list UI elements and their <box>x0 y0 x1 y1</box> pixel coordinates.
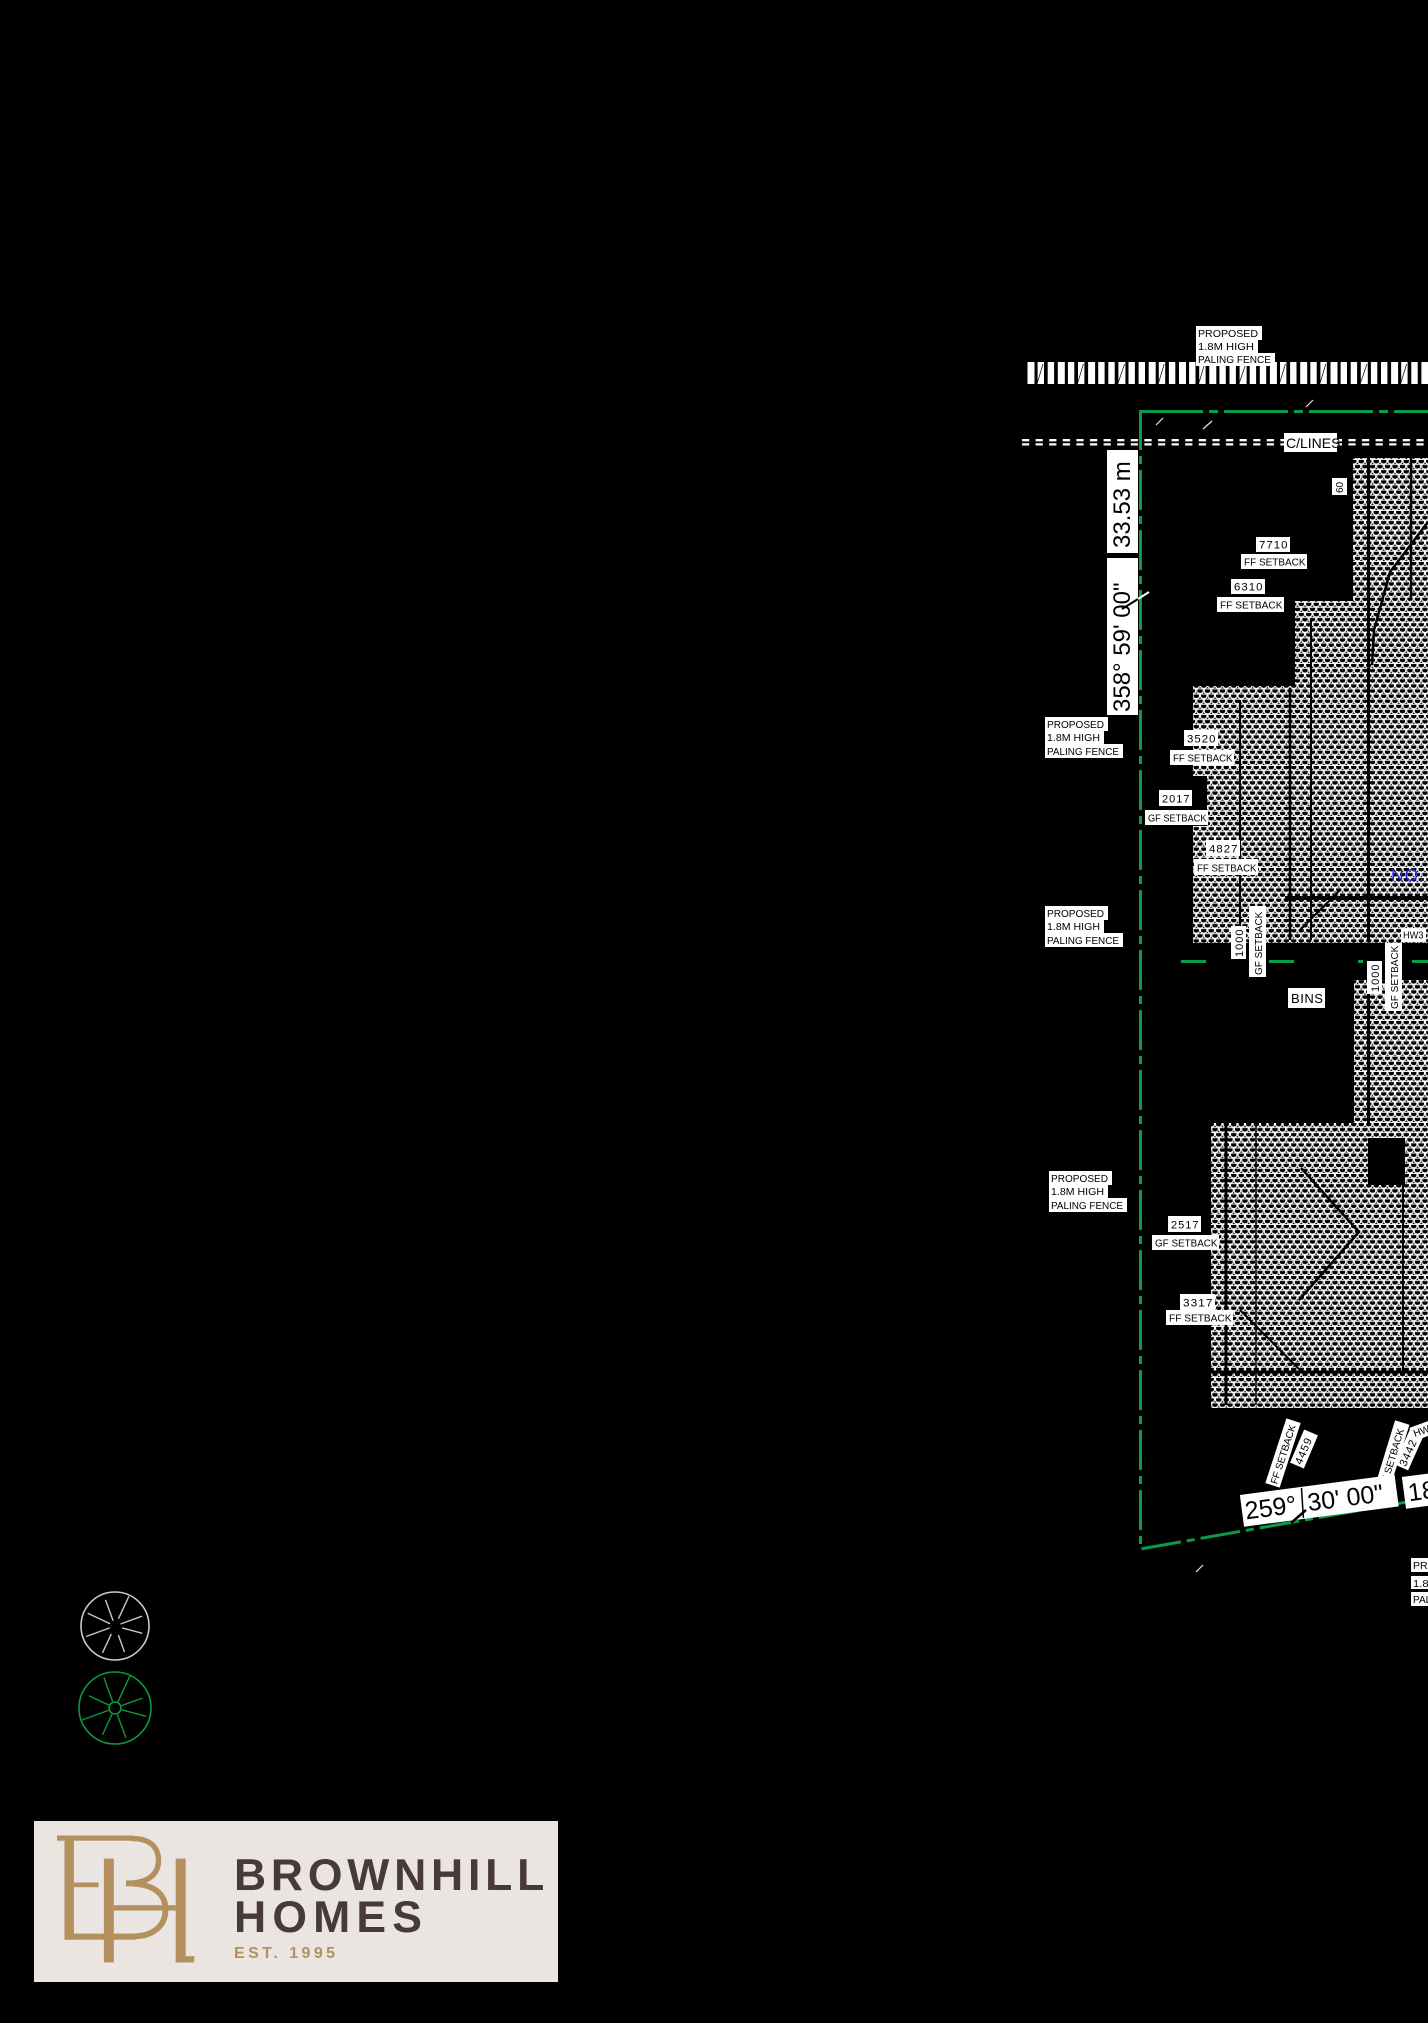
svg-text:PALING FENCE: PALING FENCE <box>1047 935 1119 947</box>
svg-text:HOMES: HOMES <box>234 1893 428 1942</box>
svg-text:1000: 1000 <box>1370 964 1382 992</box>
svg-text:GF SETBACK: GF SETBACK <box>1148 814 1207 825</box>
svg-text:EST. 1995: EST. 1995 <box>234 1945 338 1962</box>
svg-text:PALING FENCE: PALING FENCE <box>1047 746 1119 758</box>
svg-text:FF SETBACK: FF SETBACK <box>1220 601 1283 612</box>
svg-text:1.8M HIGH: 1.8M HIGH <box>1047 921 1100 933</box>
svg-text:HW3: HW3 <box>1403 931 1424 942</box>
svg-text:PROPOSED: PROPOSED <box>1047 719 1104 731</box>
svg-text:FF SETBACK: FF SETBACK <box>1169 1314 1232 1325</box>
svg-text:PROPOSED: PROPOSED <box>1413 1560 1428 1572</box>
svg-text:FF SETBACK: FF SETBACK <box>1244 558 1306 569</box>
svg-text:BINS: BINS <box>1291 991 1324 1006</box>
svg-text:33.53 m: 33.53 m <box>1109 461 1136 548</box>
svg-text:FF SETBACK: FF SETBACK <box>1173 754 1233 765</box>
svg-text:PROPOSED: PROPOSED <box>1051 1173 1108 1185</box>
svg-text:3520: 3520 <box>1187 734 1217 746</box>
svg-text:FF SETBACK: FF SETBACK <box>1197 864 1257 875</box>
svg-text:C/LINES: C/LINES <box>1286 435 1340 451</box>
svg-text:60: 60 <box>1335 481 1346 493</box>
svg-text:PALING FENCE: PALING FENCE <box>1051 1200 1123 1212</box>
svg-text:GF SETBACK: GF SETBACK <box>1254 911 1265 975</box>
svg-text:1000: 1000 <box>1234 929 1246 957</box>
svg-text:7710: 7710 <box>1259 540 1289 552</box>
svg-text:PALING FENCE: PALING FENCE <box>1413 1594 1428 1606</box>
svg-text:2517: 2517 <box>1171 1220 1200 1232</box>
svg-text:1.8M HIGH: 1.8M HIGH <box>1413 1578 1428 1590</box>
svg-text:PROPOSED: PROPOSED <box>1198 328 1258 340</box>
svg-text:1.8M HIGH: 1.8M HIGH <box>1051 1186 1104 1198</box>
svg-text:1.8M HIGH: 1.8M HIGH <box>1047 732 1100 744</box>
svg-text:GF SETBACK: GF SETBACK <box>1390 945 1401 1009</box>
svg-text:4827: 4827 <box>1209 844 1239 856</box>
svg-text:PALING FENCE: PALING FENCE <box>1198 354 1271 366</box>
svg-text:2017: 2017 <box>1162 794 1191 806</box>
svg-text:6310: 6310 <box>1234 582 1264 594</box>
svg-text:PROPOSED: PROPOSED <box>1047 908 1104 920</box>
svg-text:3317: 3317 <box>1183 1298 1214 1310</box>
svg-text:18.2: 18.2 <box>1406 1473 1428 1507</box>
svg-text:NO.: NO. <box>1391 865 1425 885</box>
svg-text:GF SETBACK: GF SETBACK <box>1155 1239 1218 1250</box>
svg-text:1.8M HIGH: 1.8M HIGH <box>1198 341 1254 353</box>
